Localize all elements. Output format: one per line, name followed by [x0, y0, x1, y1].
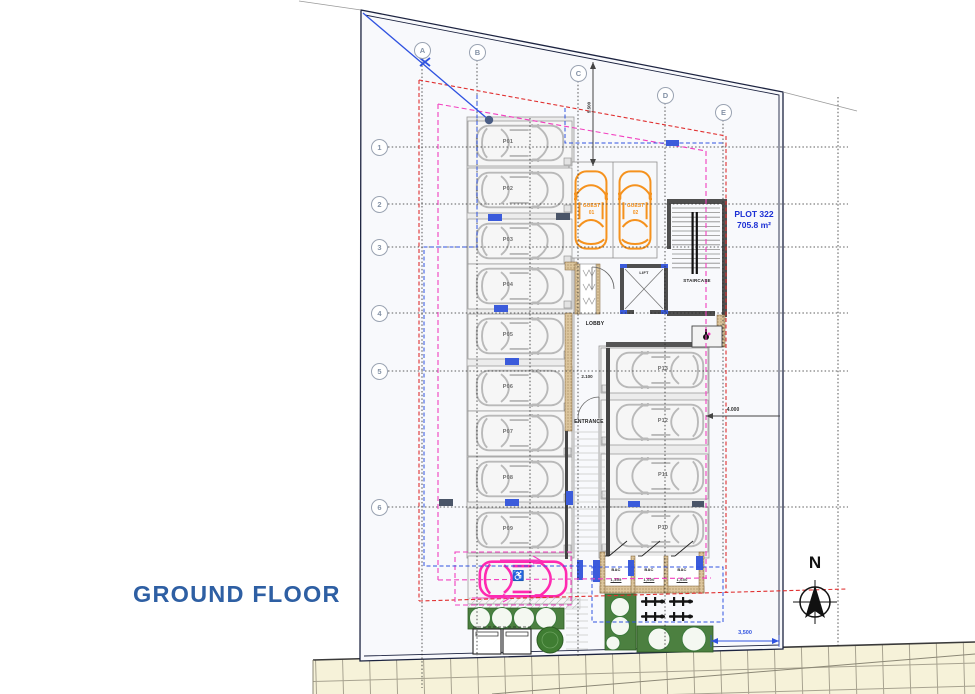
stall-label-p06: P06	[478, 384, 538, 390]
room-label-staircase: STAIRCASE	[672, 279, 722, 284]
grid-row-6: 6	[371, 499, 388, 516]
grid-row-2-label: 2	[377, 200, 381, 209]
grid-row-3-label: 3	[377, 243, 381, 252]
grid-column-e: E	[715, 104, 732, 121]
stall-label-p08: P08	[478, 475, 538, 481]
grid-row-3: 3	[371, 239, 388, 256]
grid-row-4: 4	[371, 305, 388, 322]
grid-column-a: A	[414, 42, 431, 59]
grid-column-e-label: E	[721, 108, 726, 117]
guest-stall-2: GUEST 02	[614, 162, 657, 257]
stall-label-p04: P04	[478, 282, 538, 288]
room-label-lobby: LOBBY	[570, 322, 620, 328]
grid-column-d-label: D	[663, 91, 668, 100]
dim-pavement: 3,500	[723, 630, 767, 636]
stall-label-p07: P07	[478, 429, 538, 435]
grid-column-d: D	[657, 87, 674, 104]
north-label: N	[800, 553, 830, 573]
stall-label-p10: P10	[633, 525, 693, 531]
guest-stall-1: GUEST 01	[570, 162, 613, 257]
stall-label-p02: P02	[478, 186, 538, 192]
stall-label-p09: P09	[478, 526, 538, 532]
storage-dim-1: 1,355	[602, 578, 630, 582]
grid-column-c-label: C	[576, 69, 581, 78]
page-title: GROUND FLOOR	[133, 581, 341, 608]
grid-row-1-label: 1	[377, 143, 381, 152]
dim-boundary-to-building: 5.500	[587, 93, 592, 123]
north-compass-icon	[793, 580, 837, 624]
dim-building-to-boundary: 4.000	[718, 407, 748, 413]
grid-column-a-label: A	[420, 46, 425, 55]
guest-1-number: 01	[589, 210, 595, 217]
grid-column-b-label: B	[475, 48, 480, 57]
storage-dim-2: 1,600	[635, 578, 663, 582]
stall-label-p01: P01	[478, 139, 538, 145]
grid-row-5-label: 5	[377, 367, 381, 376]
room-label-entrance: ENTRANCE	[566, 420, 612, 426]
stall-label-p11: P11	[633, 472, 693, 478]
storage-label-2: BAC	[635, 568, 663, 572]
plot-area: 705.8 m²	[715, 220, 793, 231]
grid-row-4-label: 4	[377, 309, 381, 318]
storage-dim-3: 1,650	[668, 578, 696, 582]
grid-row-2: 2	[371, 196, 388, 213]
plot-annotation: PLOT 322 705.8 m²	[715, 209, 793, 230]
stall-label-p03: P03	[478, 237, 538, 243]
plot-name: PLOT 322	[715, 209, 793, 220]
room-label-lift: LIFT	[630, 271, 658, 275]
wheelchair-icon: ♿	[512, 571, 524, 582]
storage-label-1: BAC	[602, 568, 630, 572]
grid-row-6-label: 6	[377, 503, 381, 512]
grid-column-b: B	[469, 44, 486, 61]
dim-entrance-width: 2.100	[572, 374, 602, 379]
grid-row-5: 5	[371, 363, 388, 380]
storage-label-3: BAC	[668, 568, 696, 572]
meter-box	[692, 326, 722, 347]
stall-label-p05: P05	[478, 332, 538, 338]
grid-row-1: 1	[371, 139, 388, 156]
stall-label-p13: P13	[633, 366, 693, 372]
stall-label-p12: P12	[633, 418, 693, 424]
floor-plan-canvas: A B C D E 1 2 3 4 5 6 P01 P02 P03 P04 P0…	[0, 0, 975, 694]
guest-2-number: 02	[633, 210, 639, 217]
grid-column-c: C	[570, 65, 587, 82]
